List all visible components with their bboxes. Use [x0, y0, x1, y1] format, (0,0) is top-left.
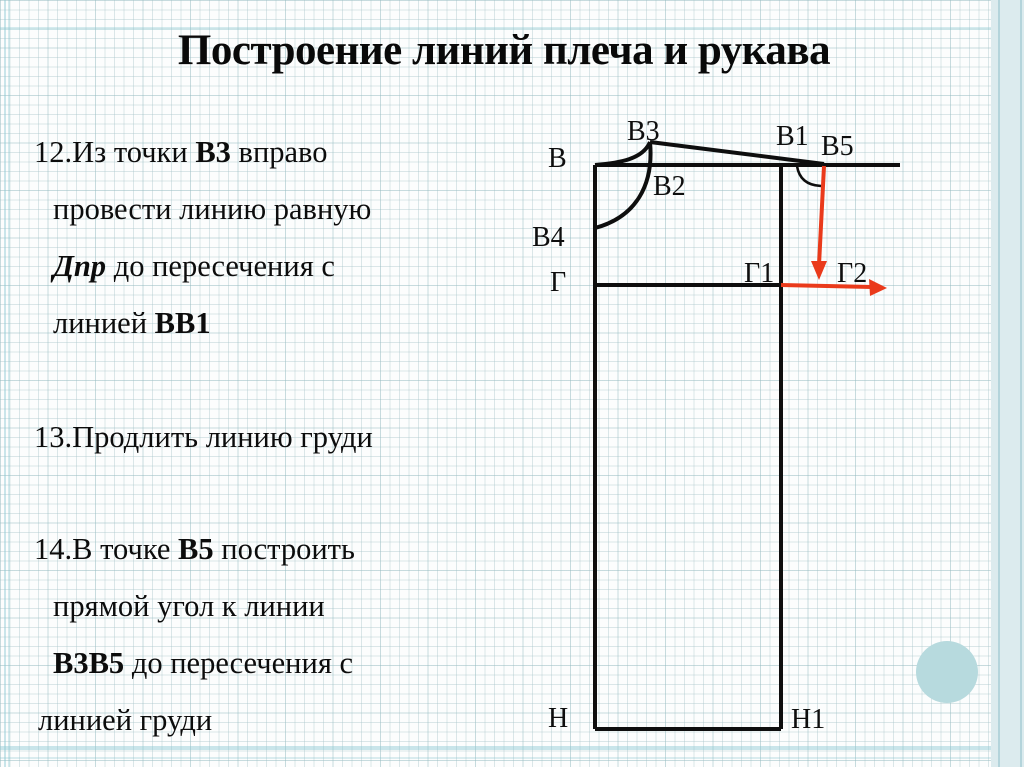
pattern-diagram: В В3 В2 В1 В5 В4 Г Г1 Г2 Н Н1 — [520, 105, 920, 745]
text-segment: линией груди — [38, 703, 212, 737]
instruction-12-line-4: линией ВВ1 — [34, 295, 371, 352]
text-segment: 14.В точке — [34, 532, 178, 566]
text-segment: 13.Продлить линию груди — [34, 420, 373, 454]
text-segment: 12.Из точки — [34, 135, 195, 169]
text-segment: вправо — [231, 135, 328, 169]
point-ref-b3: В3 — [195, 135, 231, 169]
text-segment: линией — [53, 306, 155, 340]
text-segment: до пересечения с — [106, 249, 335, 283]
label-g1: Г1 — [744, 258, 774, 289]
instruction-12: 12.Из точки В3 вправо провести линию рав… — [34, 124, 371, 352]
instruction-14-line-2: прямой угол к линии — [34, 578, 355, 635]
instruction-14-line-4: линией груди — [34, 692, 355, 749]
right-margin-line — [998, 0, 1000, 767]
right-angle-arc — [797, 166, 821, 186]
right-margin-line-2 — [1020, 0, 1022, 767]
instruction-14-line-3: В3В5 до пересечения с — [34, 635, 355, 692]
text-segment: прямой угол к линии — [53, 589, 325, 623]
point-ref-b5: В5 — [178, 532, 214, 566]
label-g2: Г2 — [837, 258, 867, 289]
instruction-12-line-2: провести линию равную — [34, 181, 371, 238]
label-b4: В4 — [532, 222, 565, 253]
arrowhead-down-icon — [811, 261, 827, 280]
label-b: В — [548, 143, 567, 174]
instruction-14: 14.В точке В5 построить прямой угол к ли… — [34, 521, 355, 749]
construction-line-b5-down — [819, 166, 824, 265]
neckline-curve-b3-b4 — [595, 142, 651, 228]
decorative-circle — [916, 641, 978, 703]
left-margin-line-2 — [8, 0, 10, 767]
line-ref-bb1: ВВ1 — [155, 306, 211, 340]
text-segment: провести линию равную — [53, 192, 371, 226]
label-b1: В1 — [776, 121, 809, 152]
arrowhead-right-icon — [869, 279, 887, 296]
instruction-13-line-1: 13.Продлить линию груди — [34, 409, 373, 466]
slide-title: Построение линий плеча и рукава — [0, 26, 1008, 75]
measure-ref-dpr: Дпр — [53, 249, 106, 283]
text-segment: до пересечения с — [124, 646, 353, 680]
label-n: Н — [548, 703, 568, 734]
label-n1: Н1 — [791, 704, 825, 735]
left-margin-line — [4, 0, 6, 767]
bottom-margin-line-2 — [0, 757, 1024, 759]
line-ref-b3b5: В3В5 — [53, 646, 124, 680]
text-segment: построить — [214, 532, 355, 566]
label-b2: В2 — [653, 171, 686, 202]
label-b5: В5 — [821, 131, 854, 162]
instruction-12-line-3: Дпр до пересечения с — [34, 238, 371, 295]
slide: Построение линий плеча и рукава 12.Из то… — [0, 0, 1024, 767]
instruction-13: 13.Продлить линию груди — [34, 409, 373, 466]
label-g: Г — [550, 267, 566, 298]
instruction-14-line-1: 14.В точке В5 построить — [34, 521, 355, 578]
label-b3: В3 — [627, 116, 660, 147]
instruction-12-line-1: 12.Из точки В3 вправо — [34, 124, 371, 181]
